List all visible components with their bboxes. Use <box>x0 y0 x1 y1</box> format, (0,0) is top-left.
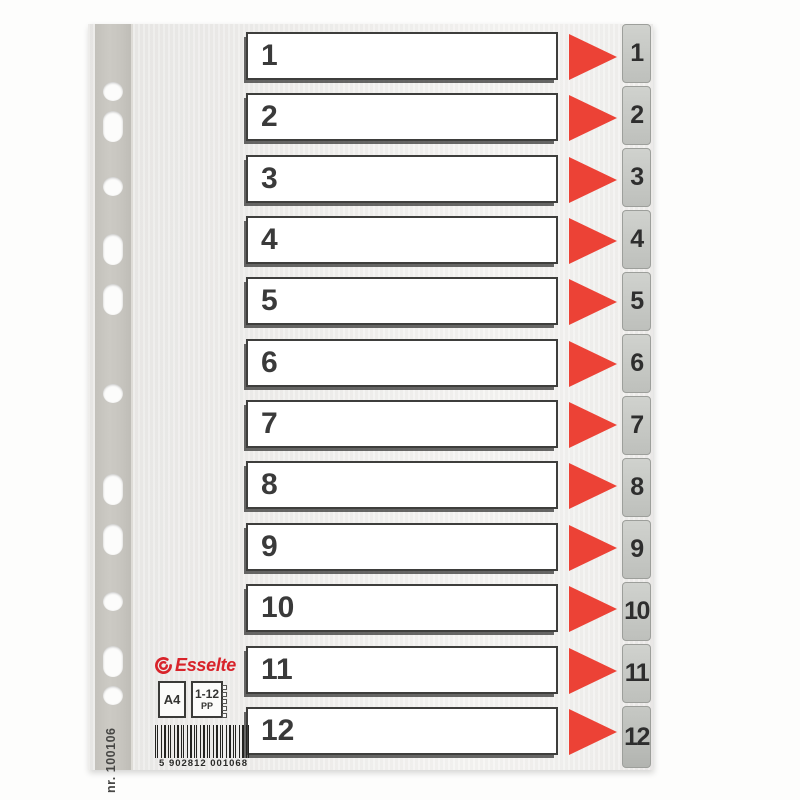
label-row: 12 <box>246 707 618 759</box>
material-label: PP <box>201 701 213 711</box>
tab-pictogram-notch <box>222 692 227 697</box>
tab-number: 4 <box>630 225 642 254</box>
red-arrow-icon <box>569 402 617 448</box>
punch-hole <box>103 474 123 505</box>
row-number: 8 <box>248 463 556 507</box>
red-arrow-icon <box>569 218 617 264</box>
punch-hole <box>103 384 123 403</box>
tab-number: 11 <box>625 659 648 688</box>
index-tab-1: 1 <box>622 24 651 83</box>
row-number: 4 <box>248 218 556 262</box>
red-arrow-icon <box>569 709 617 755</box>
barcode-digits: 5 902812 001068 <box>155 758 252 769</box>
index-tab-5: 5 <box>622 272 651 331</box>
tab-number: 2 <box>630 101 642 130</box>
esselte-swoosh-icon <box>154 656 173 675</box>
tab-number: 10 <box>624 597 649 626</box>
red-arrow-icon <box>569 95 617 141</box>
label-row: 3 <box>246 155 618 207</box>
punch-hole <box>103 646 123 677</box>
tab-pictogram-notch <box>222 699 227 704</box>
row-number: 11 <box>248 648 556 692</box>
label-row: 4 <box>246 216 618 268</box>
label-row: 1 <box>246 32 618 84</box>
brand-name: Esselte <box>175 655 236 676</box>
tab-number: 9 <box>630 535 642 564</box>
label-row: 7 <box>246 400 618 452</box>
label-row: 11 <box>246 646 618 698</box>
row-number: 5 <box>248 279 556 323</box>
tab-number: 5 <box>630 287 642 316</box>
punch-hole <box>103 177 123 196</box>
index-tab-6: 6 <box>622 334 651 393</box>
label-field: 4 <box>246 216 558 264</box>
index-tab-10: 10 <box>622 582 651 641</box>
item-number-label: nr. 100106 <box>104 728 118 793</box>
tab-number: 1 <box>630 39 642 68</box>
label-field: 9 <box>246 523 558 571</box>
red-arrow-icon <box>569 525 617 571</box>
punch-hole <box>103 111 123 142</box>
row-number: 1 <box>248 34 556 78</box>
barcode: 5 902812 001068 <box>155 725 252 769</box>
label-row: 5 <box>246 277 618 329</box>
red-arrow-icon <box>569 341 617 387</box>
punch-hole <box>103 234 123 265</box>
barcode-bars <box>155 725 252 758</box>
red-arrow-icon <box>569 34 617 80</box>
red-arrow-icon <box>569 463 617 509</box>
product-photo: nr. 100106 1 2 3 4 5 6 7 <box>0 0 800 800</box>
punch-hole <box>103 524 123 555</box>
range-label: 1-12 <box>195 688 219 701</box>
label-field: 1 <box>246 32 558 80</box>
label-field: 2 <box>246 93 558 141</box>
label-row: 6 <box>246 339 618 391</box>
tab-number: 3 <box>630 163 642 192</box>
label-field: 11 <box>246 646 558 694</box>
row-number: 6 <box>248 341 556 385</box>
red-arrow-icon <box>569 586 617 632</box>
divider-sheet: nr. 100106 1 2 3 4 5 6 7 <box>88 24 653 770</box>
row-number: 3 <box>248 157 556 201</box>
label-row: 9 <box>246 523 618 575</box>
tab-pictogram-notch <box>222 713 227 718</box>
tab-number: 7 <box>630 411 642 440</box>
label-row: 10 <box>246 584 618 636</box>
red-arrow-icon <box>569 279 617 325</box>
index-tab-2: 2 <box>622 86 651 145</box>
index-tab-11: 11 <box>622 644 651 703</box>
row-number: 9 <box>248 525 556 569</box>
label-field: 6 <box>246 339 558 387</box>
index-tab-12: 12 <box>622 706 651 768</box>
row-number: 2 <box>248 95 556 139</box>
index-tab-7: 7 <box>622 396 651 455</box>
row-number: 10 <box>248 586 556 630</box>
red-arrow-icon <box>569 157 617 203</box>
punch-hole <box>103 686 123 705</box>
binding-strip <box>95 24 133 770</box>
label-field: 10 <box>246 584 558 632</box>
index-tab-8: 8 <box>622 458 651 517</box>
format-label: A4 <box>164 692 181 707</box>
punch-hole <box>103 592 123 611</box>
label-row: 8 <box>246 461 618 513</box>
row-number: 7 <box>248 402 556 446</box>
range-material-badge: 1-12 PP <box>191 681 223 718</box>
index-tab-4: 4 <box>622 210 651 269</box>
label-field: 3 <box>246 155 558 203</box>
format-badge: A4 <box>158 681 186 718</box>
label-field: 12 <box>246 707 558 755</box>
tab-number: 12 <box>624 723 649 752</box>
index-tab-3: 3 <box>622 148 651 207</box>
tab-number: 8 <box>630 473 642 502</box>
label-field: 8 <box>246 461 558 509</box>
punch-hole <box>103 284 123 315</box>
row-number: 12 <box>248 709 556 753</box>
label-field: 5 <box>246 277 558 325</box>
red-arrow-icon <box>569 648 617 694</box>
label-field: 7 <box>246 400 558 448</box>
punch-hole <box>103 82 123 101</box>
brand-logo: Esselte <box>154 654 236 676</box>
tab-pictogram-notch <box>222 706 227 711</box>
index-tab-9: 9 <box>622 520 651 579</box>
label-row: 2 <box>246 93 618 145</box>
tab-pictogram-notch <box>222 685 227 690</box>
tab-number: 6 <box>630 349 642 378</box>
